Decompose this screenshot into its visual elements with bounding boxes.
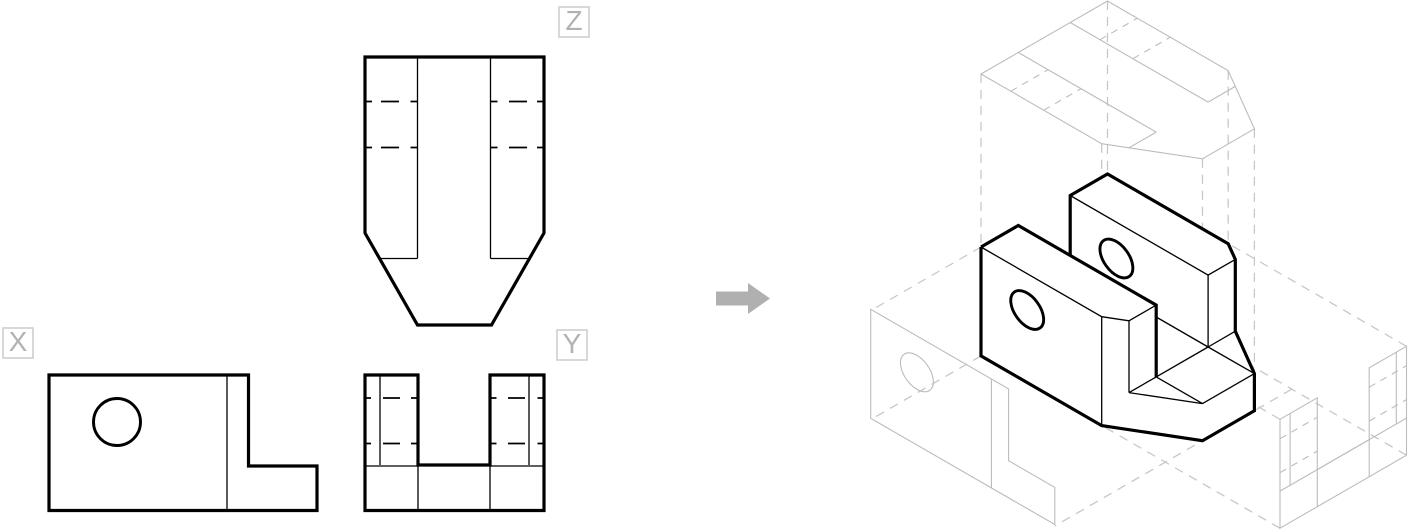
technical-drawing-canvas: X Y Z [0,0,1408,531]
view-label-y: Y [557,328,587,360]
side-view-hidden-hole-lines [365,398,544,444]
view-label-x: X [3,326,33,358]
view-label-z-text: Z [565,5,582,36]
side-view-step-seams [418,466,490,511]
side-view-drawing [365,375,544,511]
top-view-outline [365,57,544,325]
front-view-drawing [49,375,317,511]
isometric-solid-object [981,174,1254,441]
view-label-z: Z [559,5,589,37]
view-label-y-text: Y [563,328,582,359]
transform-arrow-icon [716,283,770,314]
projected-front-hole [894,347,940,398]
orthographic-to-isometric-figure: X Y Z [0,0,1408,531]
projected-top-view [981,1,1254,159]
projected-side-view [1280,346,1407,528]
front-view-outline [49,375,317,511]
top-view-hidden-hole-lines [365,102,544,148]
view-label-x-text: X [9,326,28,357]
top-view-drawing [365,57,544,325]
front-view-hole-circle [94,399,141,446]
